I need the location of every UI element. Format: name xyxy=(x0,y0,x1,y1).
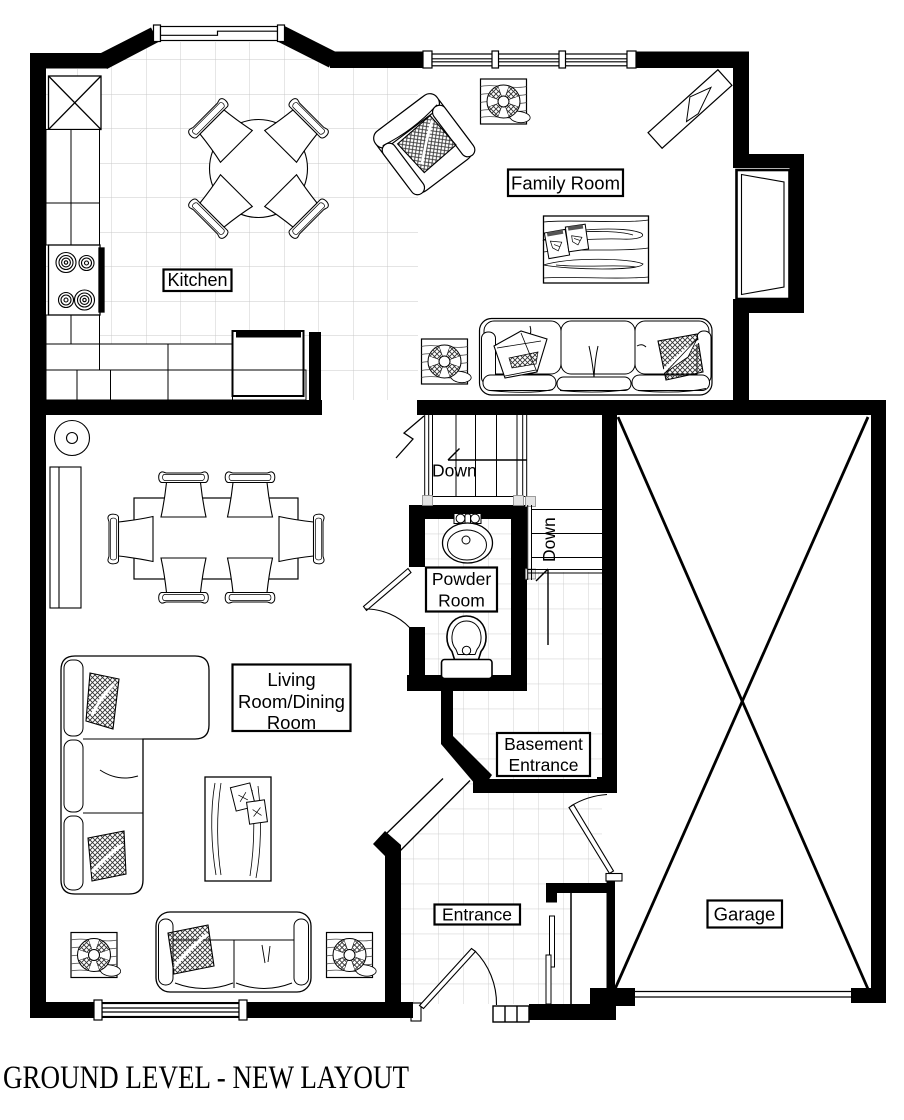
svg-text:Family Room: Family Room xyxy=(511,173,620,194)
svg-text:Room: Room xyxy=(267,712,316,733)
svg-text:Kitchen: Kitchen xyxy=(167,270,227,290)
svg-text:Down: Down xyxy=(539,517,559,562)
svg-text:Entrance: Entrance xyxy=(442,905,512,925)
svg-text:Powder: Powder xyxy=(432,569,492,589)
svg-text:Entrance: Entrance xyxy=(508,755,578,775)
svg-text:Garage: Garage xyxy=(714,904,776,925)
svg-text:Room/Dining: Room/Dining xyxy=(238,691,345,712)
svg-text:Down: Down xyxy=(432,461,477,481)
svg-text:Basement: Basement xyxy=(504,734,583,754)
svg-text:Room: Room xyxy=(438,591,485,611)
svg-text:GROUND LEVEL - NEW LAYOUT: GROUND LEVEL - NEW LAYOUT xyxy=(3,1060,409,1096)
svg-text:Living: Living xyxy=(267,669,315,690)
